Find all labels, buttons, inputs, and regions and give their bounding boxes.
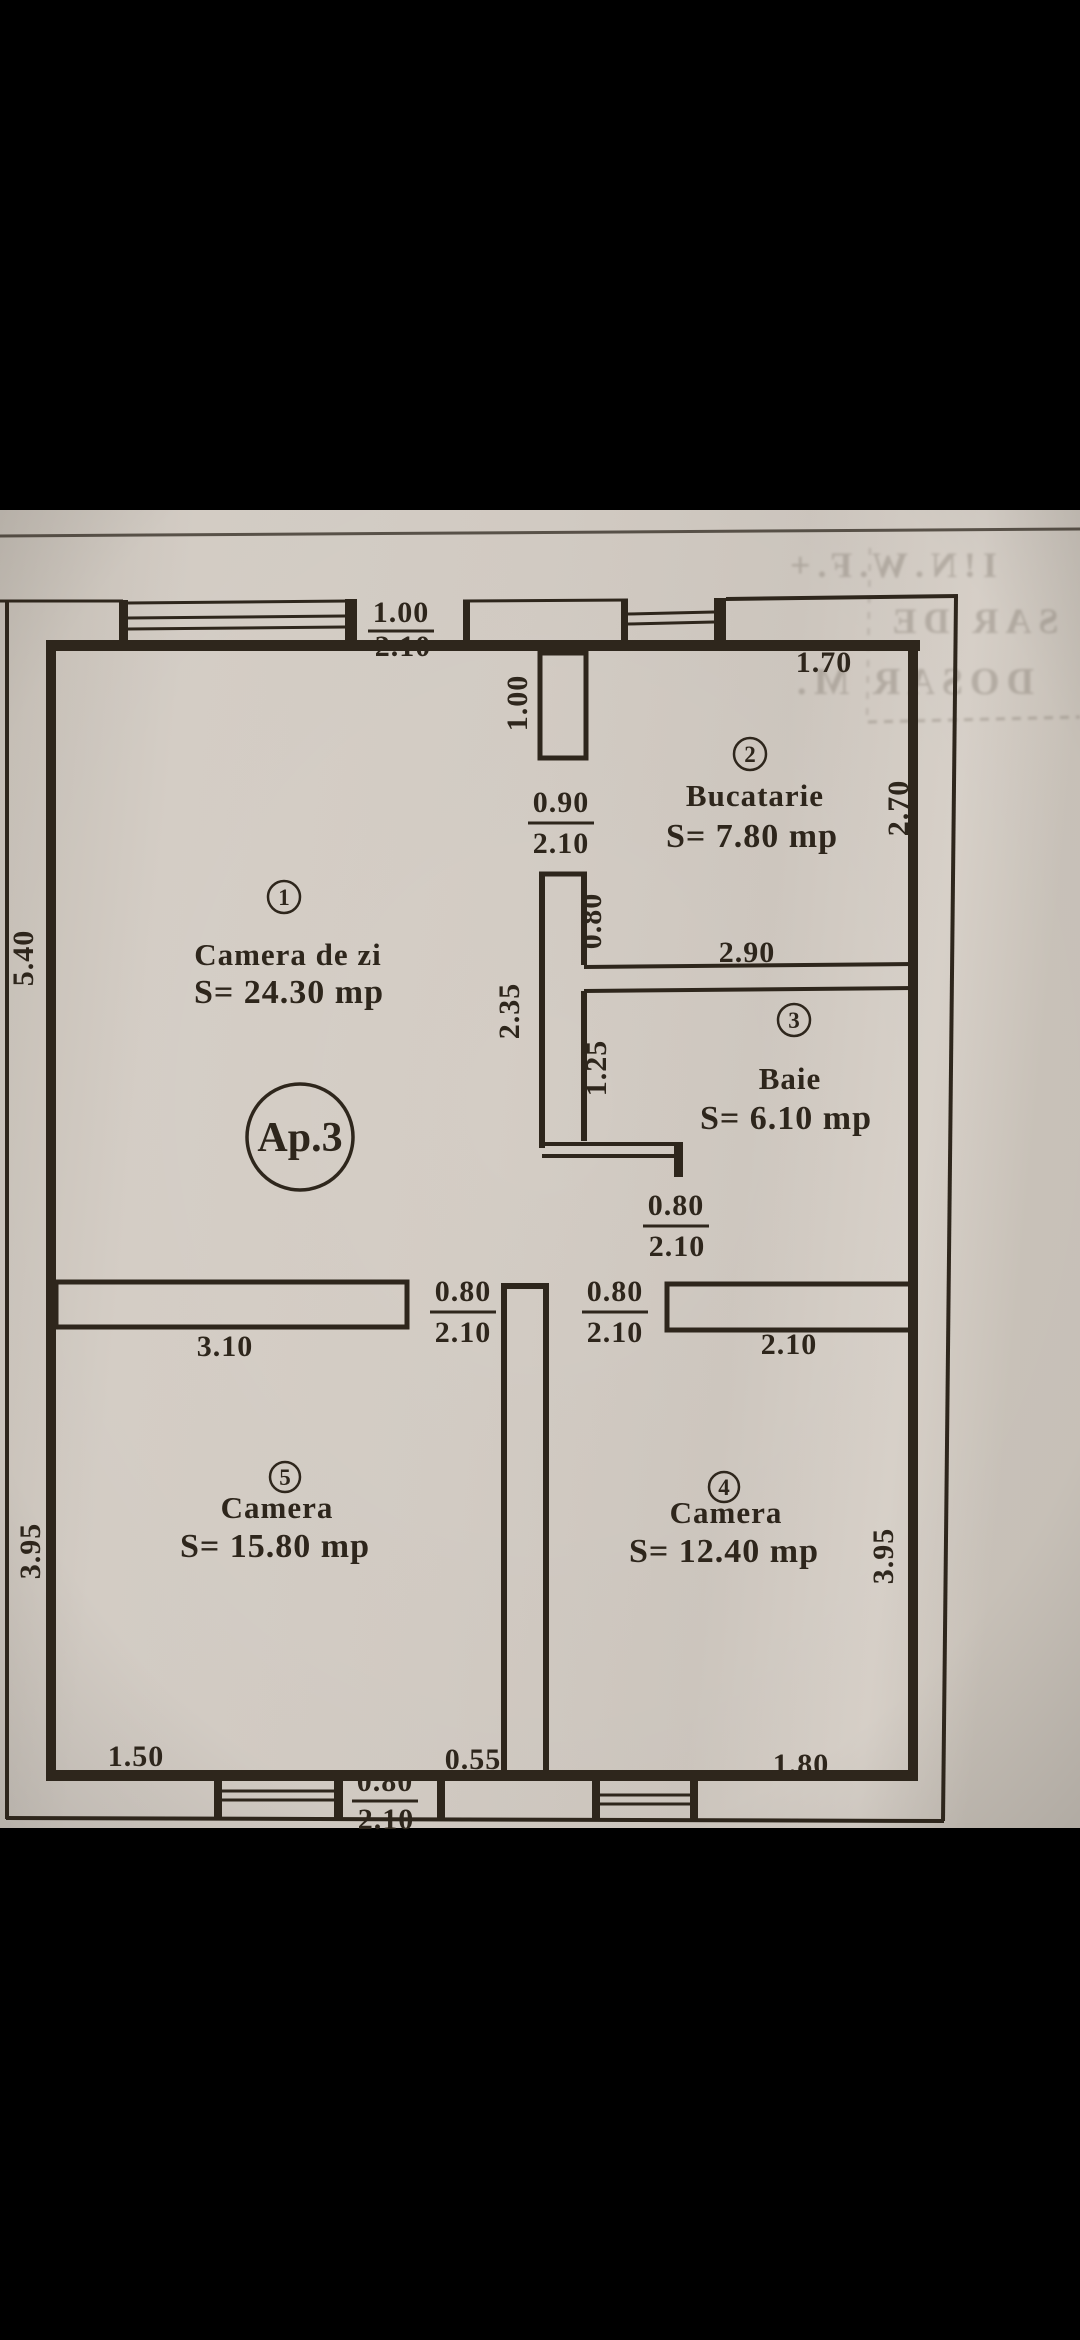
top-wall-seg-outer xyxy=(463,600,628,601)
dim-room4-door-height: 2.10 xyxy=(587,1316,644,1349)
dim-bottom-left: 1.50 xyxy=(108,1740,165,1773)
dim-bottom-right: 1.80 xyxy=(773,1748,830,1781)
dim-top-door: 1.00 xyxy=(368,596,434,631)
kitchen-window-glass-1 xyxy=(628,612,714,614)
dim-room5-door: 0.80 2.10 xyxy=(430,1275,496,1349)
room1-name: Camera de zi xyxy=(194,937,382,972)
dim-living-wall: 2.35 xyxy=(493,983,526,1040)
dim-room5-left: 3.95 xyxy=(14,1523,47,1580)
dim-bath-door-height: 2.10 xyxy=(649,1230,706,1263)
dim-bottom-mid: 0.55 xyxy=(445,1743,502,1776)
room3-number: 3 xyxy=(788,1008,800,1033)
dim-bath-wall: 1.25 xyxy=(580,1040,613,1097)
dim-kitchen-top: 1.70 xyxy=(796,646,853,679)
room1-number: 1 xyxy=(278,885,290,910)
room4-name: Camera xyxy=(670,1495,783,1530)
dim-bath-door-width: 0.80 xyxy=(648,1189,705,1222)
dim-interior-door: 0.90 2.10 xyxy=(528,786,594,860)
apartment-badge-text: Ap.3 xyxy=(257,1115,342,1161)
top-window-glass-2 xyxy=(128,627,345,629)
top-window-glass-1 xyxy=(128,616,345,618)
dim-room5-top: 3.10 xyxy=(197,1330,254,1363)
dim-kitchen-right: 2.70 xyxy=(882,780,915,837)
dim-bottom-door-height: 2.10 xyxy=(358,1803,415,1836)
room5-number: 5 xyxy=(279,1465,291,1490)
dim-room4-door-width: 0.80 xyxy=(587,1275,644,1308)
kitchen-window-glass-2 xyxy=(628,622,714,624)
dim-int-door-width: 0.90 xyxy=(533,786,590,819)
room3-name: Baie xyxy=(759,1061,822,1096)
bottom-door-jamb xyxy=(437,1781,445,1819)
bleed-row-1: I!N.W.F.+ xyxy=(783,545,997,585)
top-window-outer xyxy=(128,601,348,603)
top-wall-inner xyxy=(46,640,920,651)
dim-top-door-width: 1.00 xyxy=(373,596,430,629)
dim-wall-seg: 0.80 xyxy=(575,893,608,950)
top-window-jamb-right xyxy=(345,599,357,645)
dim-bath-door: 0.80 2.10 xyxy=(643,1189,709,1263)
dim-bottom-door: 2.10 xyxy=(352,1801,418,1836)
room2-area: S= 7.80 mp xyxy=(666,818,838,855)
top-window-jamb-left xyxy=(119,600,128,645)
kitchen-window-jamb xyxy=(714,598,726,645)
photo-stage: I!N.W.F.+ SAR DE DOSAR M. 2.10 0.80 xyxy=(0,0,1080,2340)
top-seg-jamb-left xyxy=(463,600,470,645)
floor-plan-photo: I!N.W.F.+ SAR DE DOSAR M. 2.10 0.80 xyxy=(0,0,1080,2340)
bottom-window2-jamb-right xyxy=(690,1781,698,1819)
bottom-window1-jamb-right xyxy=(334,1781,343,1819)
dim-wall-stub: 1.00 xyxy=(501,675,534,732)
room4-area: S= 12.40 mp xyxy=(629,1533,819,1570)
bottom-window2-jamb-left xyxy=(592,1781,600,1819)
dim-room5-door-width: 0.80 xyxy=(435,1275,492,1308)
dim-int-door-height: 2.10 xyxy=(533,827,590,860)
room1-area: S= 24.30 mp xyxy=(194,974,384,1011)
room5-name: Camera xyxy=(221,1490,334,1525)
dim-room4-door: 0.80 2.10 xyxy=(582,1275,648,1349)
room5-area: S= 15.80 mp xyxy=(180,1528,370,1565)
left-wall-inner xyxy=(46,640,56,1781)
dim-hall-right: 2.10 xyxy=(761,1328,818,1361)
bleed-row-2: SAR DE xyxy=(885,601,1058,641)
dim-bottom-door-width: 0.80 xyxy=(357,1765,414,1798)
dim-room4-right: 3.95 xyxy=(867,1528,900,1585)
room2-name: Bucatarie xyxy=(686,778,824,813)
bath-door-jamb xyxy=(674,1144,683,1177)
dim-left-wall: 5.40 xyxy=(7,930,40,987)
dim-room5-door-height: 2.10 xyxy=(435,1316,492,1349)
room3-area: S= 6.10 mp xyxy=(700,1100,872,1137)
bottom-window1-jamb-left xyxy=(214,1781,222,1819)
dim-kitchen-width: 2.90 xyxy=(719,936,776,969)
room2-number: 2 xyxy=(744,742,756,767)
top-seg-jamb-right xyxy=(621,599,628,644)
